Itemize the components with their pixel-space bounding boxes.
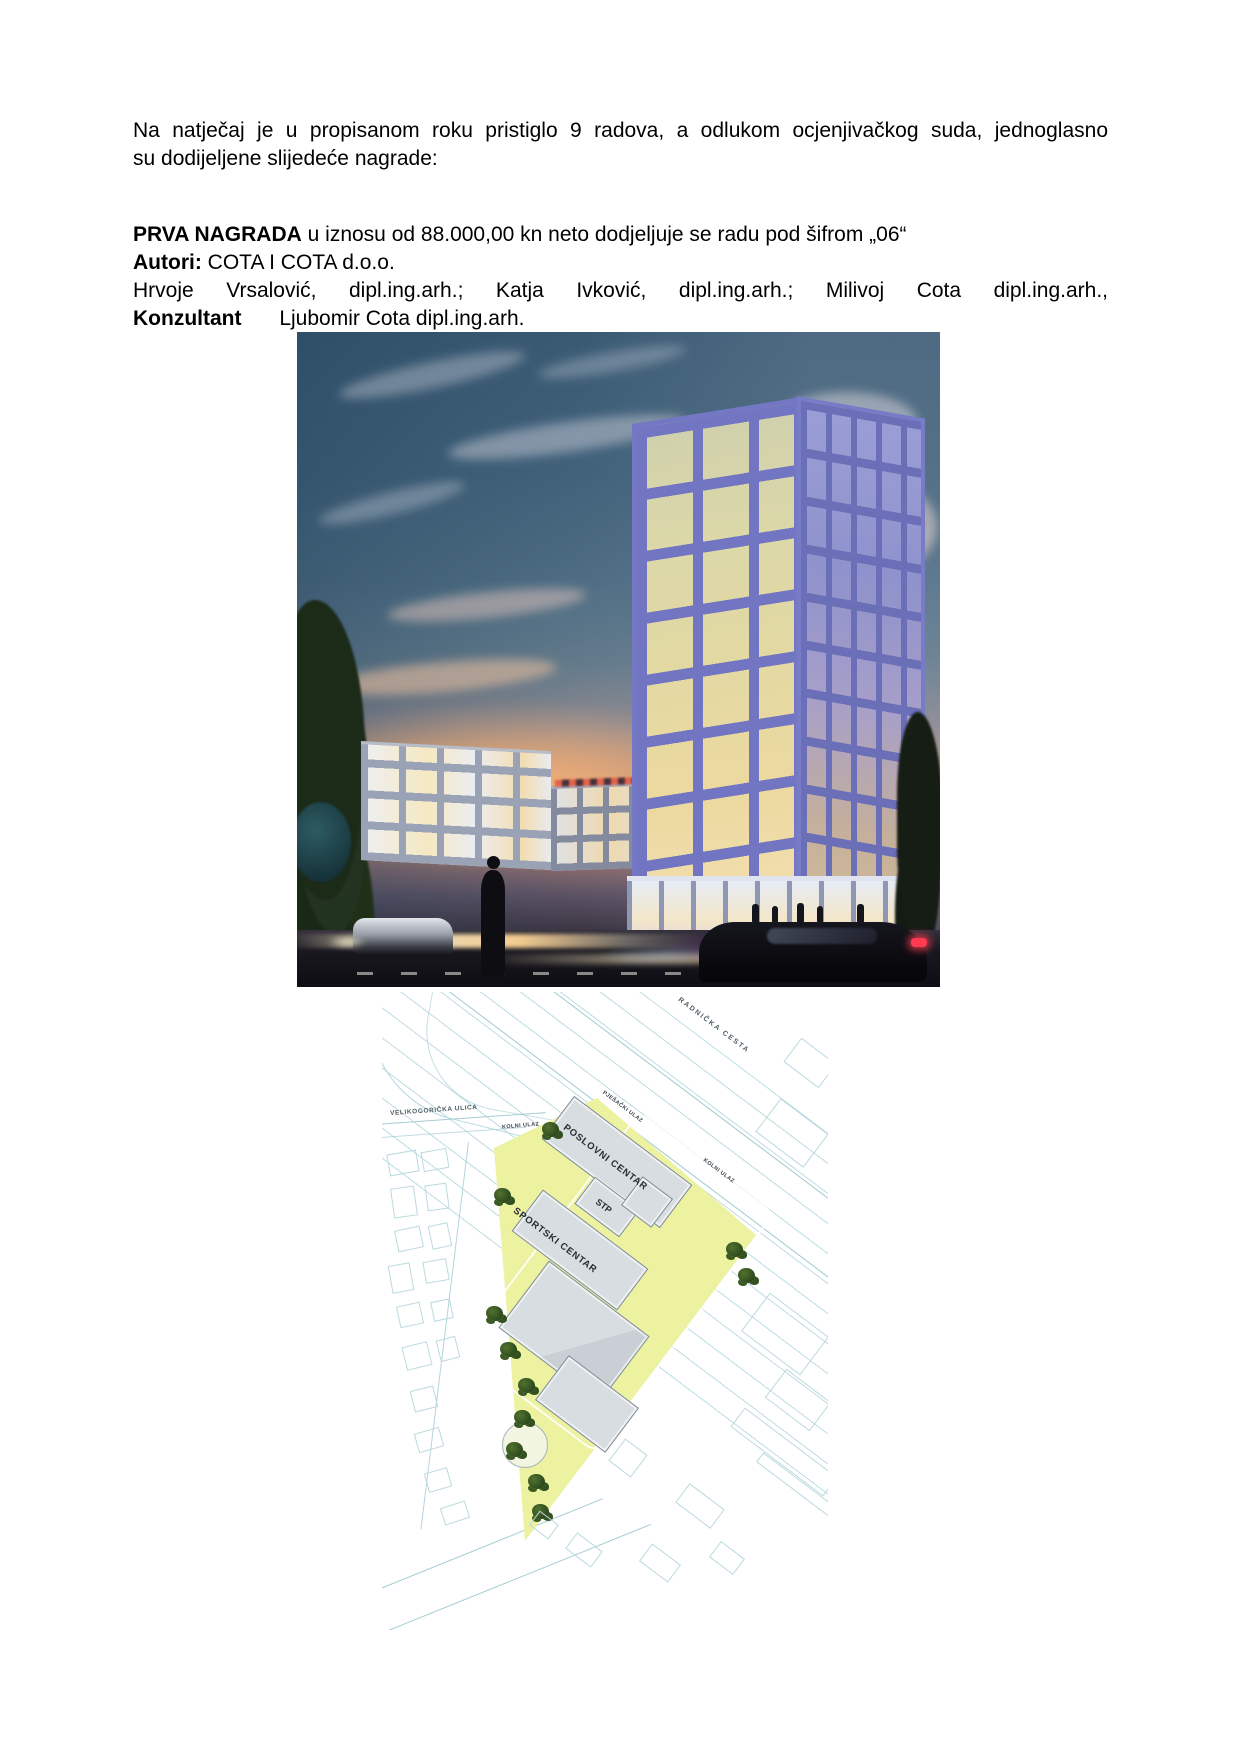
rendering-taillight — [911, 938, 927, 947]
rendering-pedestrian — [481, 870, 505, 980]
siteplan-tree — [506, 1442, 523, 1457]
siteplan-tree — [528, 1474, 545, 1489]
siteplan-parcel — [396, 1302, 424, 1329]
siteplan-parcel — [709, 1541, 745, 1575]
consultant-label: Konzultant — [133, 307, 241, 330]
prize-line: PRVA NAGRADA u iznosu od 88.000,00 kn ne… — [133, 221, 1108, 249]
authors-label: Autori: — [133, 251, 202, 274]
prize-title: PRVA NAGRADA — [133, 223, 302, 246]
siteplan-tree — [542, 1122, 559, 1137]
authors-people-line: Hrvoje Vrsalović, dipl.ing.arh.; Katja I… — [133, 277, 1108, 305]
siteplan-parcel — [424, 1183, 449, 1212]
rendering-pedestrian-head — [487, 856, 500, 869]
siteplan-tree — [726, 1242, 743, 1257]
siteplan-parcel — [608, 1438, 647, 1477]
siteplan-parcel — [639, 1543, 681, 1582]
siteplan-tree — [514, 1410, 531, 1425]
rendering-parked-car — [353, 918, 453, 954]
siteplan-parcel — [675, 1483, 725, 1529]
siteplan-tree — [500, 1342, 517, 1357]
rendering-low-office-building — [361, 741, 551, 870]
siteplan-parcel — [388, 1262, 415, 1293]
siteplan-parcel — [401, 1341, 432, 1371]
siteplan-parcel — [394, 1226, 424, 1253]
authors-line: Autori: COTA I COTA d.o.o. — [133, 249, 1108, 277]
prize-text: u iznosu od 88.000,00 kn neto dodjeljuje… — [308, 223, 907, 246]
siteplan-tree — [738, 1268, 755, 1283]
siteplan-parcel — [422, 1258, 449, 1284]
rendering-tower-front-facade — [632, 398, 799, 936]
rendering-pedestrian — [857, 904, 864, 924]
rendering-pedestrian — [752, 904, 759, 924]
intro-line-2: su dodijeljene slijedeće nagrade: — [133, 145, 1108, 173]
siteplan-parcel — [414, 1427, 445, 1453]
siteplan-tree — [494, 1188, 511, 1203]
siteplan-parcel — [436, 1336, 461, 1362]
siteplan-street-line — [382, 1524, 651, 1630]
site-plan-image: POSLOVNI CENTAR STP SPORTSKI CENTAR RADN… — [382, 992, 828, 1630]
rendering-trees-right — [897, 712, 940, 952]
siteplan-tree — [486, 1306, 503, 1321]
authors-company: COTA I COTA d.o.o. — [208, 251, 395, 274]
rendering-pedestrian — [797, 903, 804, 924]
consultant-line: Konzultant Ljubomir Cota dipl.ing.arh. — [133, 305, 1108, 333]
siteplan-parcel — [410, 1385, 439, 1412]
rendering-headlight-glow — [327, 936, 367, 948]
document-page: Na natječaj je u propisanom roku pristig… — [0, 0, 1241, 1755]
rendering-car-windshield — [767, 928, 877, 944]
siteplan-tree — [518, 1378, 535, 1393]
siteplan-parcel — [390, 1185, 418, 1218]
siteplan-parcel — [430, 1298, 454, 1322]
intro-line-1: Na natječaj je u propisanom roku pristig… — [133, 117, 1108, 145]
siteplan-parcel — [783, 1038, 828, 1088]
consultant-name: Ljubomir Cota dipl.ing.arh. — [279, 305, 524, 333]
siteplan-parcel — [565, 1532, 603, 1567]
siteplan-parcel — [440, 1500, 470, 1525]
architectural-rendering-image — [297, 332, 940, 987]
